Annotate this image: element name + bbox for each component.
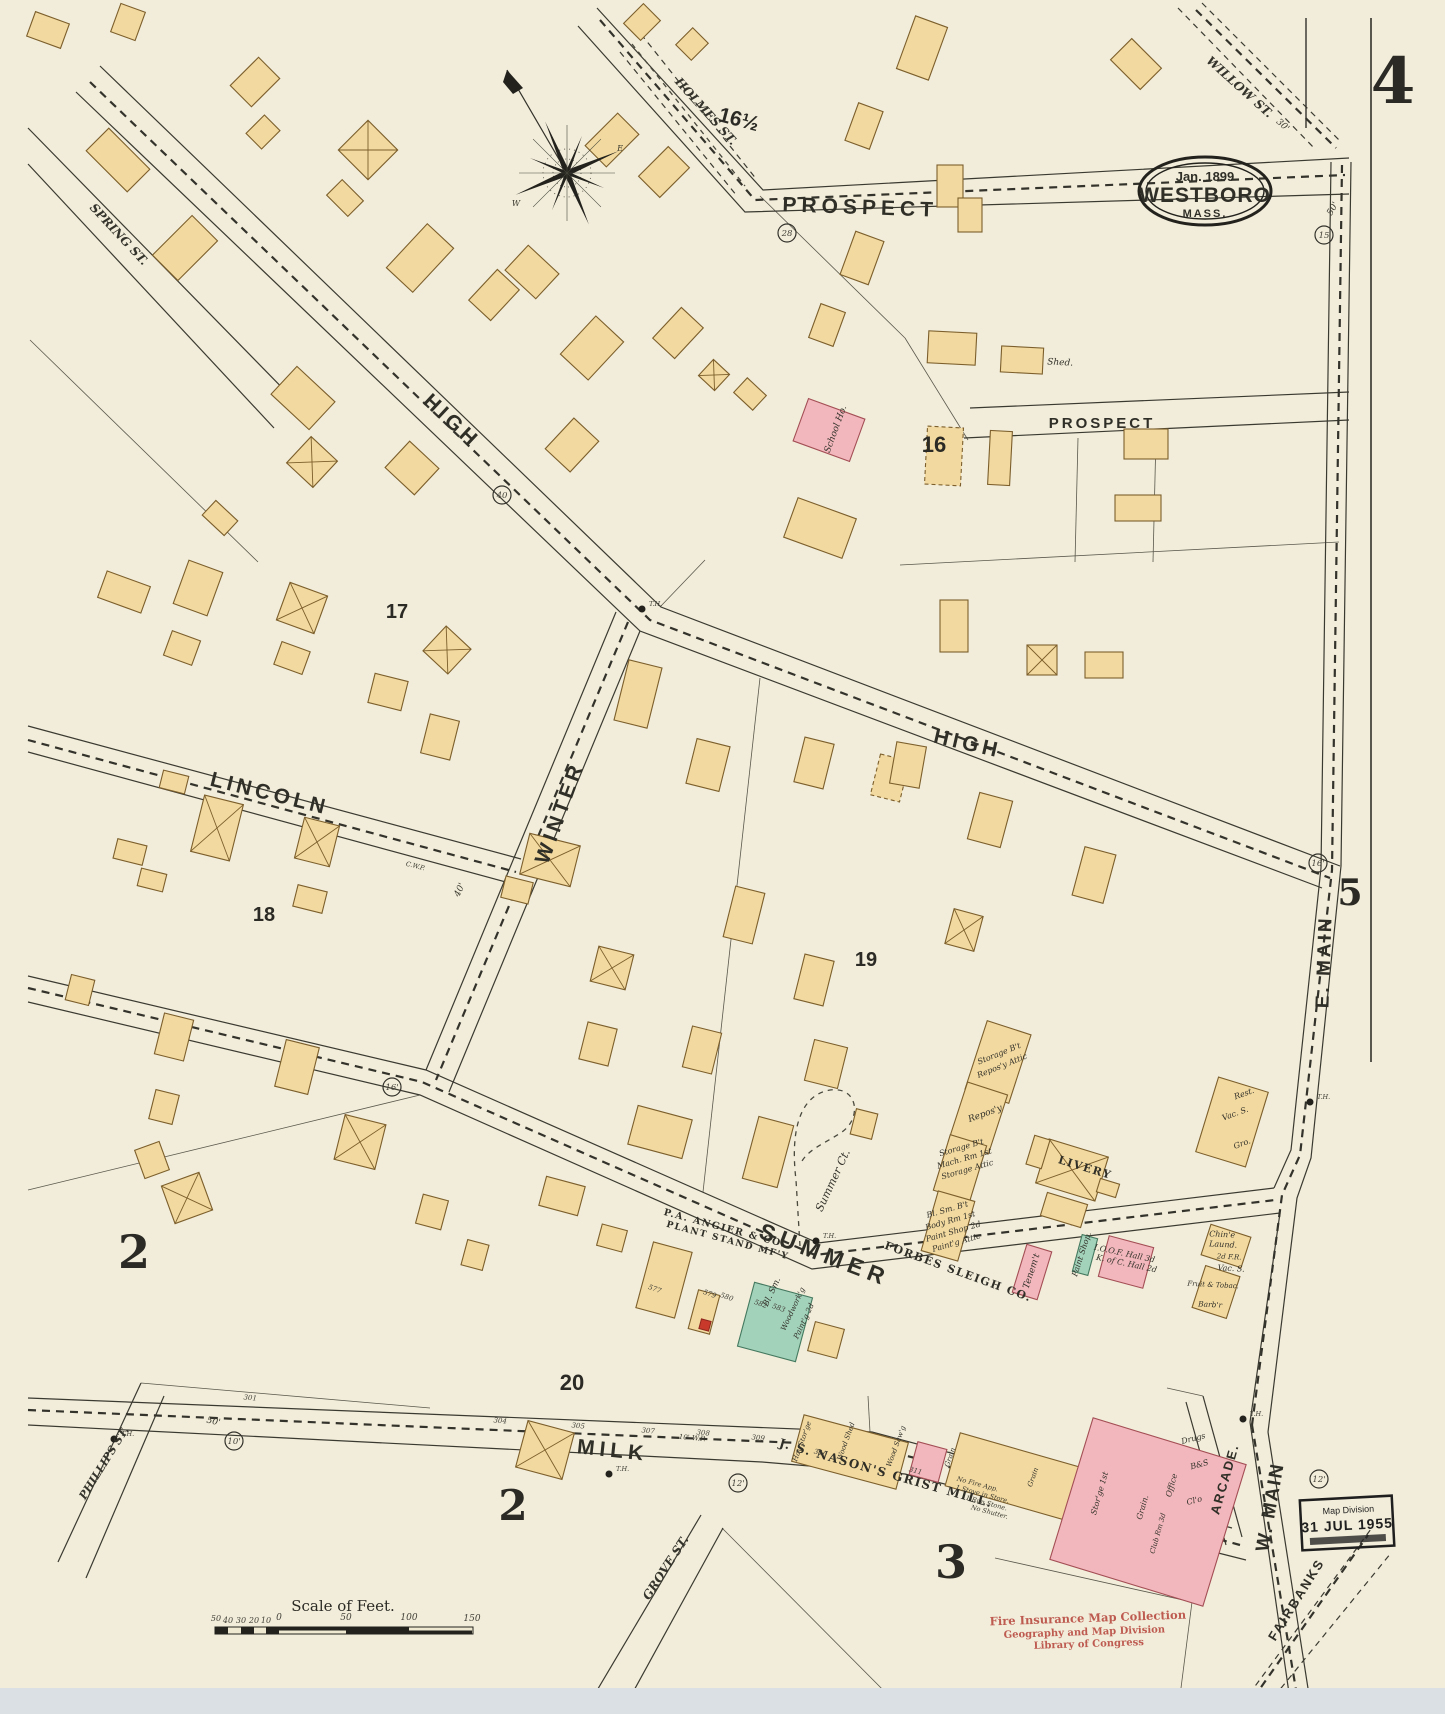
building bbox=[699, 1319, 711, 1331]
water-pipe-size: 15 bbox=[1319, 231, 1330, 241]
building-footprint bbox=[699, 1319, 711, 1331]
block-19: 19 bbox=[855, 949, 877, 971]
sheet-ref-5: 5 bbox=[1337, 872, 1362, 914]
scale-50l: 50 bbox=[211, 1614, 221, 1623]
building bbox=[940, 600, 968, 652]
bldg-shed: Shed. bbox=[1047, 357, 1074, 368]
house-309: 309 bbox=[751, 1433, 766, 1442]
block-20: 20 bbox=[560, 1370, 584, 1395]
bldg-vacant-1: Vac. S. bbox=[1217, 1263, 1245, 1273]
test-hole-dot bbox=[1307, 1099, 1314, 1106]
building-footprint bbox=[1115, 495, 1161, 521]
building-footprint bbox=[1085, 652, 1123, 678]
bldg-chinese-laundry-1: Chin'e bbox=[1209, 1229, 1236, 1239]
building bbox=[890, 742, 927, 789]
bldg-chinese-laundry-2: Laund. bbox=[1208, 1239, 1237, 1250]
house-307: 307 bbox=[641, 1426, 656, 1435]
building bbox=[1124, 429, 1168, 459]
test-hole-label: T.H. bbox=[823, 1232, 836, 1240]
scale-150: 150 bbox=[463, 1614, 480, 1624]
scale-50r: 50 bbox=[340, 1613, 352, 1623]
bldg-2d-fr: 2d F.R. bbox=[1216, 1252, 1242, 1261]
water-pipe-size: 12' bbox=[731, 1479, 744, 1489]
building bbox=[590, 946, 634, 990]
sheet-ref-3: 3 bbox=[935, 1535, 967, 1589]
building bbox=[927, 331, 977, 365]
building-footprint bbox=[988, 430, 1013, 485]
water-pipe-size: 16' bbox=[1311, 859, 1324, 869]
water-pipe-size: 28 bbox=[781, 229, 793, 239]
map-canvas: 4 Jan. 1899 WESTBORO MASS. Scale of Feet… bbox=[0, 0, 1445, 1714]
test-hole-label: T.H. bbox=[1250, 1410, 1263, 1418]
scale-30l: 30 bbox=[236, 1616, 246, 1625]
street-e-main: E. MAIN bbox=[1312, 915, 1336, 1008]
water-pipe-size: 12' bbox=[1312, 1475, 1325, 1485]
scale-40l: 40 bbox=[222, 1616, 233, 1625]
scale-100: 100 bbox=[400, 1613, 417, 1623]
building-footprint bbox=[940, 600, 968, 652]
title-state: MASS. bbox=[1183, 208, 1228, 220]
compass-e: E bbox=[616, 144, 623, 153]
block-16: 16 bbox=[922, 432, 946, 457]
title-city: WESTBORO bbox=[1139, 184, 1271, 207]
house-301: 301 bbox=[243, 1393, 257, 1402]
water-pipe-size: 16' bbox=[385, 1083, 398, 1093]
test-hole-dot bbox=[639, 606, 646, 613]
building-footprint bbox=[958, 198, 982, 232]
scanner-bed-strip bbox=[0, 1688, 1445, 1714]
sheet-number: 4 bbox=[1371, 44, 1416, 119]
sanborn-map-sheet: 4 Jan. 1899 WESTBORO MASS. Scale of Feet… bbox=[0, 0, 1445, 1714]
block-17: 17 bbox=[386, 601, 408, 623]
building bbox=[958, 198, 982, 232]
test-hole-dot bbox=[1240, 1416, 1247, 1423]
scale-10l: 10 bbox=[261, 1616, 271, 1625]
building-footprint bbox=[1124, 429, 1168, 459]
house-304: 304 bbox=[493, 1416, 507, 1425]
water-pipe-size: 10' bbox=[227, 1437, 240, 1447]
block-18: 18 bbox=[253, 904, 275, 926]
test-hole-label: T.H. bbox=[616, 1465, 629, 1473]
building-footprint bbox=[927, 331, 977, 365]
test-hole-label: T.H. bbox=[1317, 1093, 1330, 1101]
building bbox=[1027, 645, 1057, 675]
bldg-barber: Barb'r bbox=[1197, 1299, 1223, 1309]
street-prospect-2: PROSPECT bbox=[1049, 415, 1156, 432]
building bbox=[1085, 652, 1123, 678]
scale-20l: 20 bbox=[248, 1616, 259, 1625]
test-hole-dot bbox=[606, 1471, 613, 1478]
sheet-ref-2b: 2 bbox=[498, 1481, 527, 1530]
scale-0: 0 bbox=[276, 1613, 282, 1623]
compass-w: W bbox=[512, 199, 521, 208]
sheet-ref-2a: 2 bbox=[118, 1225, 150, 1279]
house-308: 308 bbox=[696, 1428, 711, 1437]
test-hole-label: T.H. bbox=[649, 600, 662, 608]
building bbox=[1000, 346, 1043, 374]
title-date: Jan. 1899 bbox=[1176, 169, 1235, 184]
house-305: 305 bbox=[571, 1421, 586, 1430]
building-footprint bbox=[1000, 346, 1043, 374]
building-footprint bbox=[890, 742, 927, 789]
building bbox=[988, 430, 1013, 485]
compass-thin-rays bbox=[519, 125, 615, 221]
water-pipe-size: 40 bbox=[496, 491, 508, 501]
building bbox=[1115, 495, 1161, 521]
